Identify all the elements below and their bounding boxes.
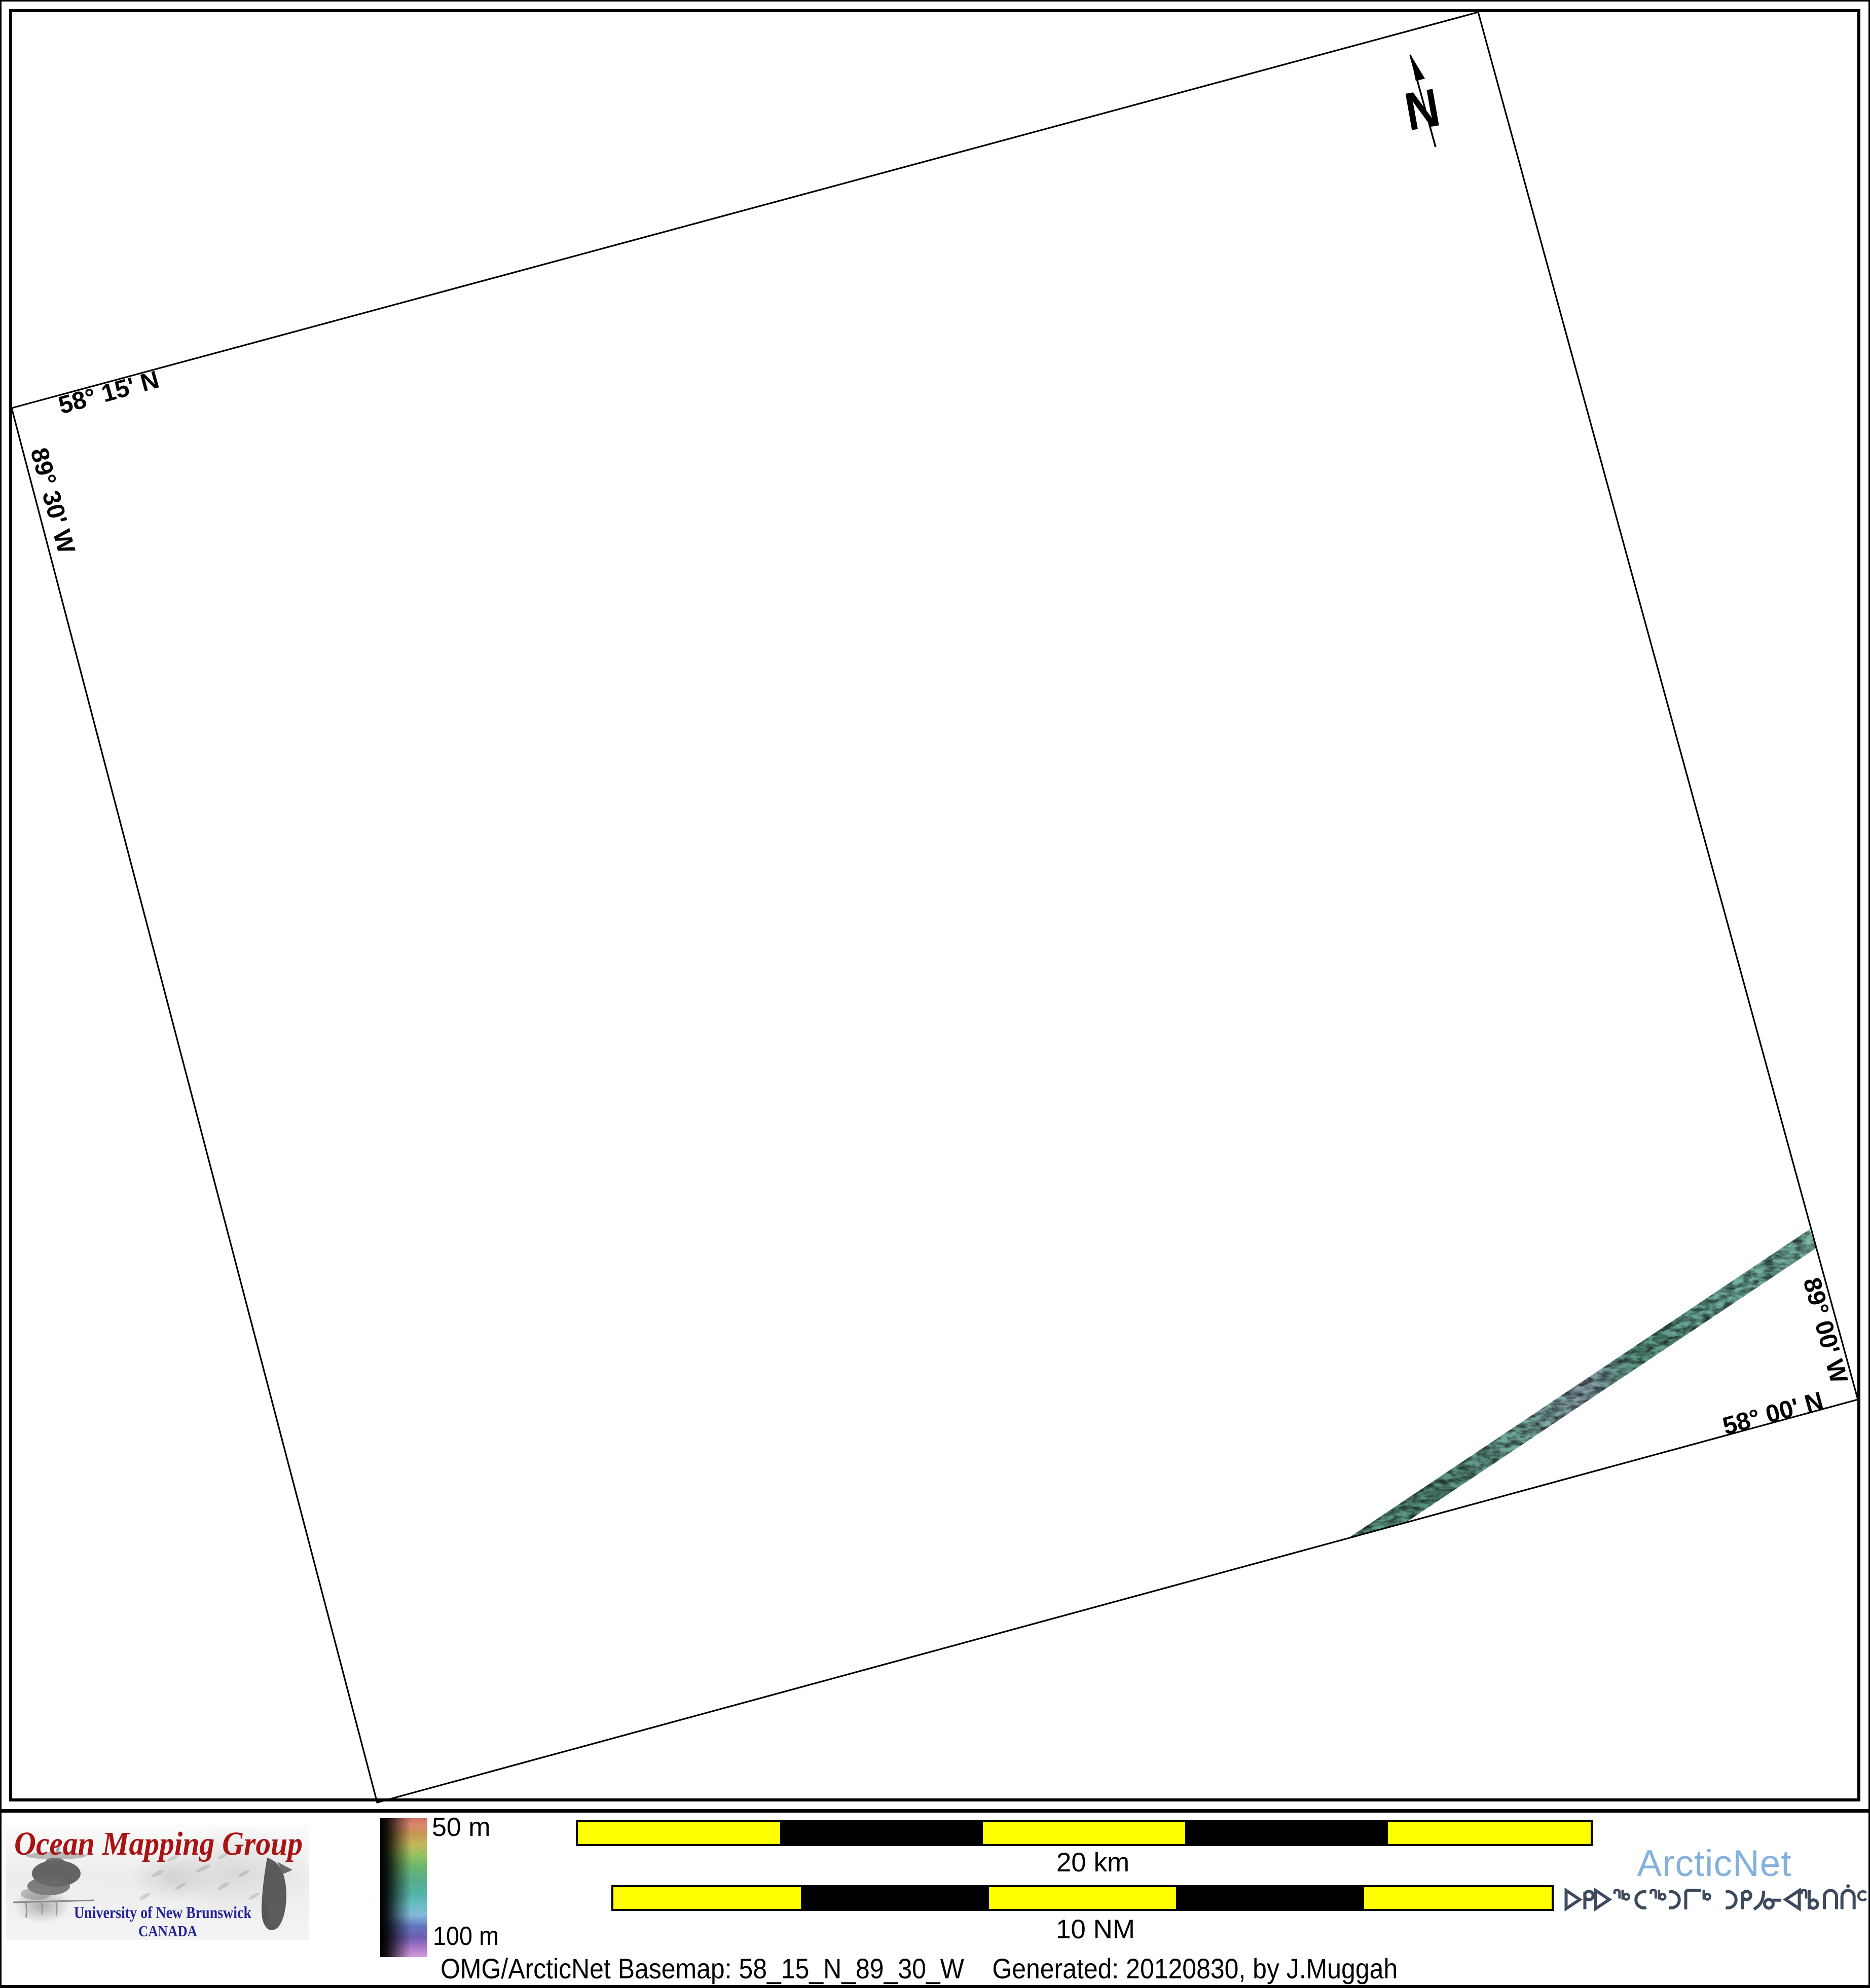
svg-text:58° 15' N: 58° 15' N [56, 366, 162, 420]
svg-text:58° 00' N: 58° 00' N [1720, 1387, 1826, 1441]
svg-text:Ocean Mapping Group: Ocean Mapping Group [14, 1825, 303, 1862]
svg-text:89° 00' W: 89° 00' W [1798, 1275, 1853, 1387]
svg-text:CANADA: CANADA [138, 1922, 198, 1940]
svg-text:89° 30' W: 89° 30' W [25, 445, 80, 557]
svg-text:University of New Brunswick: University of New Brunswick [74, 1904, 252, 1922]
svg-text:N: N [1401, 78, 1444, 142]
